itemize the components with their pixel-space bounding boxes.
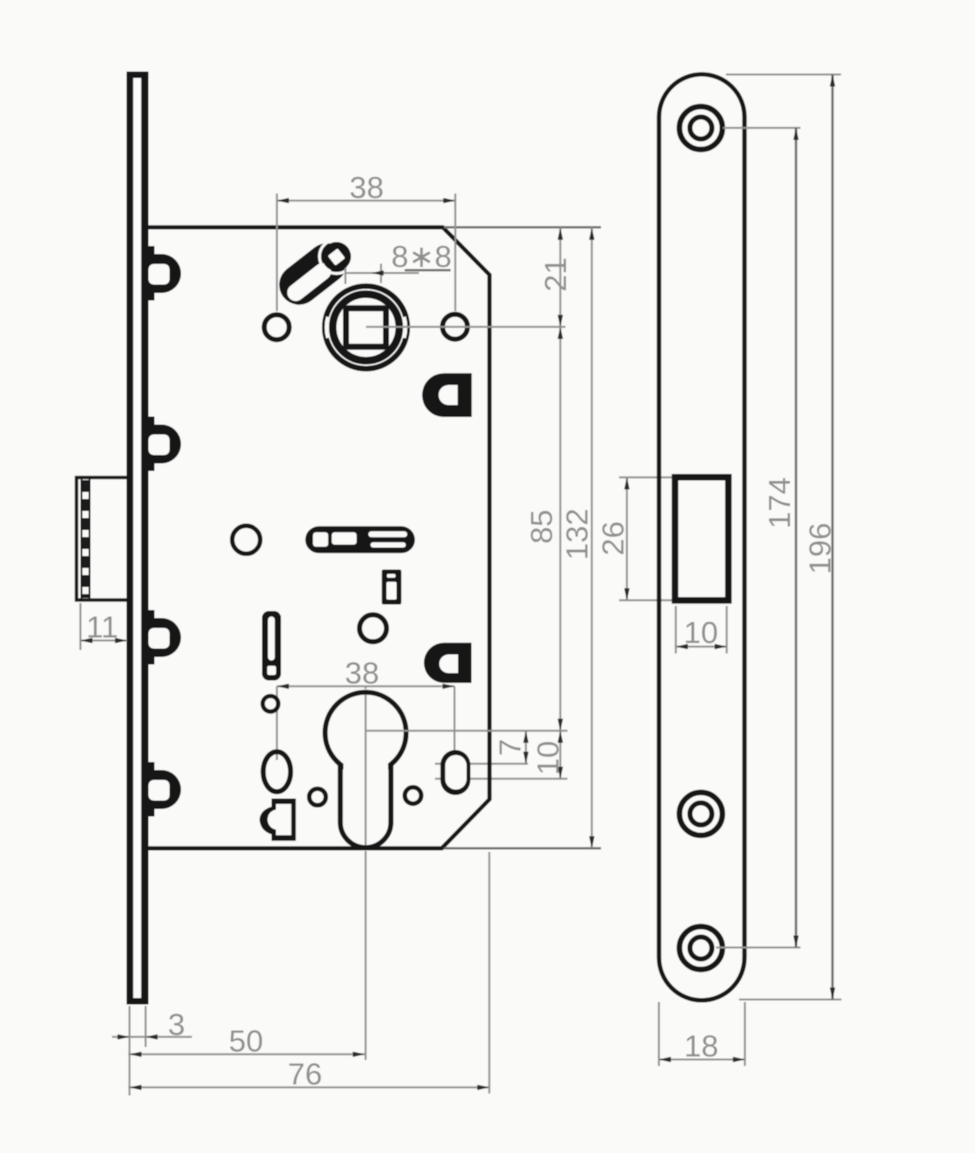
svg-text:50: 50 bbox=[229, 1024, 263, 1059]
svg-text:38: 38 bbox=[349, 170, 383, 205]
svg-text:174: 174 bbox=[762, 477, 797, 529]
svg-text:26: 26 bbox=[596, 521, 631, 555]
svg-text:7: 7 bbox=[493, 739, 528, 756]
svg-text:132: 132 bbox=[560, 508, 595, 560]
svg-text:76: 76 bbox=[288, 1057, 322, 1092]
svg-text:85: 85 bbox=[524, 509, 559, 543]
svg-text:38: 38 bbox=[345, 656, 379, 691]
svg-text:10: 10 bbox=[530, 741, 565, 775]
svg-text:18: 18 bbox=[684, 1029, 718, 1064]
svg-text:10: 10 bbox=[684, 615, 718, 650]
svg-text:21: 21 bbox=[538, 257, 573, 291]
svg-text:196: 196 bbox=[803, 523, 838, 575]
svg-text:8∗8: 8∗8 bbox=[391, 239, 451, 274]
svg-text:11: 11 bbox=[86, 610, 118, 645]
svg-text:3: 3 bbox=[168, 1007, 185, 1042]
